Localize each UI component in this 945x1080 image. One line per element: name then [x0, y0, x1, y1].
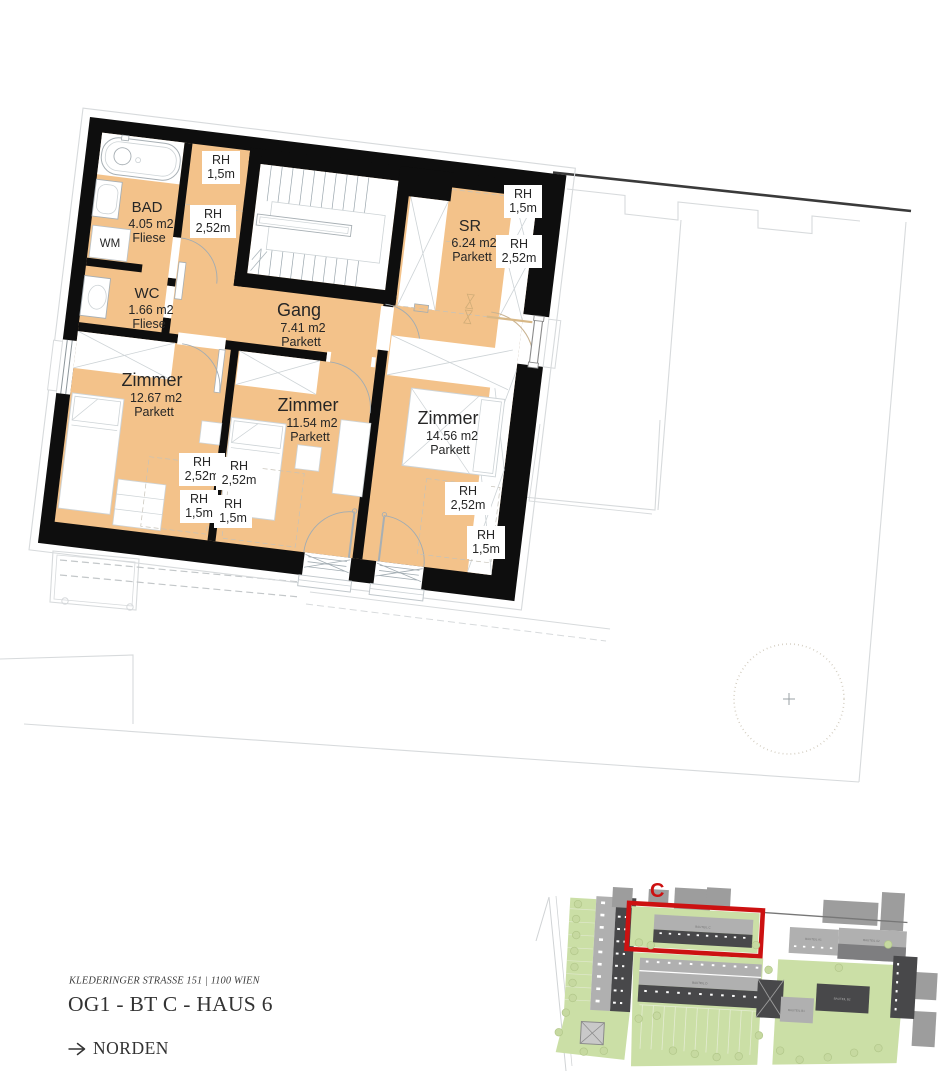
svg-text:WC: WC [135, 285, 160, 302]
svg-text:RH: RH [514, 187, 532, 201]
svg-text:2,52m: 2,52m [502, 251, 537, 265]
svg-text:1,5m: 1,5m [219, 511, 247, 525]
svg-text:NORDEN: NORDEN [93, 1038, 169, 1058]
svg-text:6.24 m2: 6.24 m2 [451, 236, 496, 250]
svg-text:Gang: Gang [277, 300, 321, 320]
svg-text:1,5m: 1,5m [185, 506, 213, 520]
svg-text:RH: RH [459, 484, 477, 498]
svg-text:12.67 m2: 12.67 m2 [130, 391, 182, 405]
svg-text:Zimmer: Zimmer [278, 395, 339, 415]
svg-text:Parkett: Parkett [134, 405, 174, 419]
svg-text:KLEDERINGER STRASSE 151 | 1100: KLEDERINGER STRASSE 151 | 1100 WIEN [68, 976, 261, 987]
svg-text:Fliese: Fliese [132, 317, 165, 331]
svg-text:1,5m: 1,5m [207, 167, 235, 181]
svg-text:RH: RH [477, 528, 495, 542]
svg-text:RH: RH [193, 455, 211, 469]
svg-text:2,52m: 2,52m [451, 498, 486, 512]
svg-text:RH: RH [190, 492, 208, 506]
svg-text:Zimmer: Zimmer [122, 370, 183, 390]
svg-text:11.54 m2: 11.54 m2 [286, 416, 337, 430]
svg-text:2,52m: 2,52m [185, 469, 220, 483]
svg-text:2,52m: 2,52m [196, 221, 231, 235]
svg-text:2,52m: 2,52m [222, 473, 257, 487]
svg-text:14.56 m2: 14.56 m2 [426, 429, 478, 443]
svg-text:RH: RH [204, 207, 222, 221]
svg-text:1,5m: 1,5m [509, 201, 537, 215]
svg-text:Zimmer: Zimmer [418, 408, 479, 428]
svg-text:RH: RH [230, 459, 248, 473]
svg-text:RH: RH [224, 497, 242, 511]
svg-text:SR: SR [459, 218, 481, 235]
svg-text:Parkett: Parkett [290, 430, 330, 444]
svg-text:1,5m: 1,5m [472, 542, 500, 556]
svg-text:1.66 m2: 1.66 m2 [128, 303, 173, 317]
svg-text:OG1 - BT C - HAUS 6: OG1 - BT C - HAUS 6 [68, 992, 273, 1016]
svg-text:4.05 m2: 4.05 m2 [128, 217, 173, 231]
svg-text:RH: RH [510, 237, 528, 251]
svg-text:BAD: BAD [132, 199, 163, 216]
svg-text:7.41 m2: 7.41 m2 [280, 321, 325, 335]
svg-text:Parkett: Parkett [281, 335, 321, 349]
svg-text:C: C [650, 880, 664, 902]
svg-text:WM: WM [100, 238, 120, 250]
svg-text:RH: RH [212, 153, 230, 167]
svg-text:Parkett: Parkett [430, 443, 470, 457]
svg-text:Parkett: Parkett [452, 250, 492, 264]
svg-text:Fliese: Fliese [132, 231, 165, 245]
